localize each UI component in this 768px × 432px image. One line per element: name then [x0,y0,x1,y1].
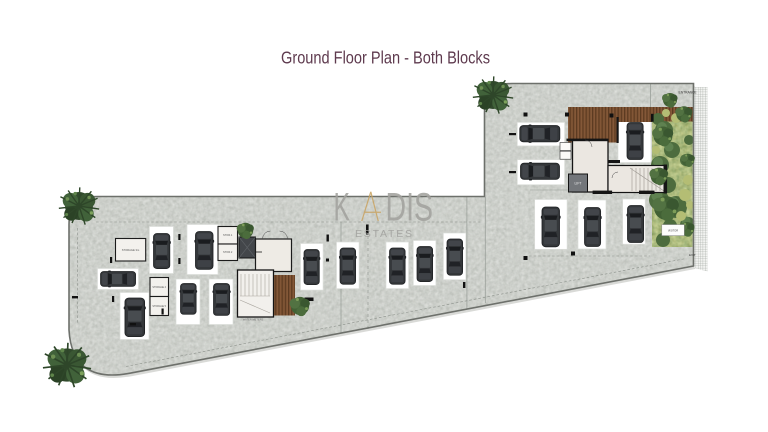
svg-text:DIS: DIS [386,186,434,230]
svg-text:VISITOR: VISITOR [668,229,678,233]
svg-text:WATER METERS: WATER METERS [243,318,264,322]
svg-text:K: K [334,186,351,230]
svg-text:STORAGE 3m: STORAGE 3m [122,248,140,252]
svg-text:ENTRANCE: ENTRANCE [679,90,698,94]
svg-text:STOR.1: STOR.1 [223,233,233,237]
svg-text:STORAGE 5: STORAGE 5 [152,305,166,308]
svg-text:Ground Floor Plan - Both Block: Ground Floor Plan - Both Blocks [281,48,490,68]
svg-text:STOR.2: STOR.2 [223,250,233,254]
svg-text:EXIT: EXIT [689,253,696,257]
svg-text:LIFT: LIFT [575,182,582,186]
svg-text:STORAGE 4: STORAGE 4 [152,286,166,289]
